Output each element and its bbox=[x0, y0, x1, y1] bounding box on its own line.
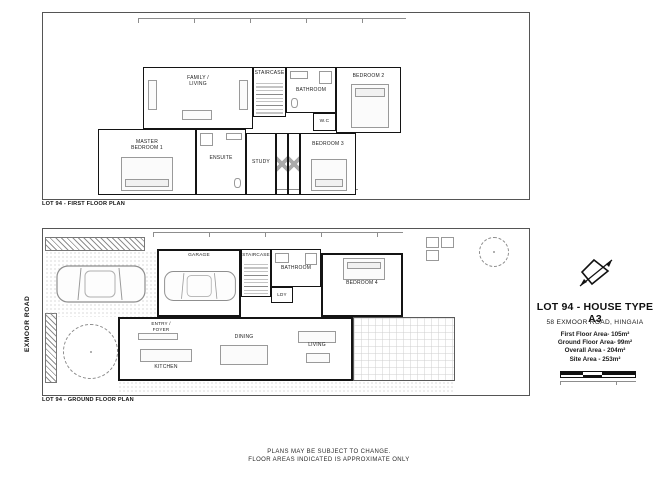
room-label: STAIRCASE bbox=[254, 71, 285, 77]
room-label: BEDROOM 2 bbox=[337, 74, 400, 80]
sheet-address: 58 EXMOOR ROAD, HINGAIA bbox=[533, 319, 657, 326]
scale-ticks bbox=[560, 381, 636, 386]
ground-floor-area: Ground Floor Area- 99m² bbox=[533, 339, 657, 347]
scale-bar bbox=[560, 371, 636, 378]
north-arrow-icon bbox=[572, 256, 616, 294]
vanity-icon bbox=[290, 71, 308, 79]
cabinet-icon bbox=[239, 80, 248, 110]
sofa-icon bbox=[148, 80, 157, 110]
area-summary: First Floor Area- 105m² Ground Floor Are… bbox=[533, 331, 657, 364]
room-wc: W.C bbox=[313, 113, 336, 131]
wardrobe-icon bbox=[276, 133, 288, 195]
toilet-icon bbox=[291, 98, 298, 108]
room-label: STAIRCASE bbox=[242, 252, 270, 258]
dimension-line bbox=[138, 18, 406, 23]
dining-table-icon bbox=[220, 345, 268, 365]
room-label: GARAGE bbox=[159, 253, 239, 259]
stairs-icon bbox=[256, 80, 283, 114]
vanity-icon bbox=[226, 133, 242, 140]
first-floor-plan: FAMILY / LIVING STAIRCASE BATHROOM W.C B… bbox=[42, 12, 530, 200]
overall-area: Overall Area - 204m² bbox=[533, 347, 657, 355]
room-staircase-first: STAIRCASE bbox=[253, 67, 286, 117]
pillow-icon bbox=[315, 179, 343, 187]
room-label: FAMILY / LIVING bbox=[144, 76, 252, 87]
shower-icon bbox=[319, 71, 332, 84]
room-label: KITCHEN bbox=[138, 365, 194, 371]
bed-icon bbox=[121, 157, 173, 191]
driveway-crossing-hatch bbox=[45, 237, 145, 251]
room-label: W.C bbox=[314, 119, 335, 125]
room-label: STUDY bbox=[247, 160, 275, 166]
kitchen-island-icon bbox=[140, 349, 192, 362]
toilet-icon bbox=[234, 178, 241, 188]
bed-icon bbox=[311, 159, 347, 191]
room-label: BATHROOM bbox=[287, 88, 335, 94]
room-bedroom2: BEDROOM 2 bbox=[336, 67, 401, 133]
path bbox=[118, 381, 455, 392]
bin-icon bbox=[441, 237, 454, 248]
room-label: BEDROOM 4 bbox=[323, 281, 401, 287]
pillow-icon bbox=[355, 88, 385, 97]
coffee-table-icon bbox=[182, 110, 212, 120]
bed-icon bbox=[351, 84, 389, 128]
room-label: BEDROOM 3 bbox=[301, 142, 355, 148]
room-bedroom4: BEDROOM 4 bbox=[321, 253, 403, 317]
room-label: MASTER BEDROOM 1 bbox=[99, 140, 195, 151]
shower-icon bbox=[200, 133, 213, 146]
tree-icon bbox=[63, 324, 118, 379]
disclaimer-line2: FLOOR AREAS INDICATED IS APPROXIMATE ONL… bbox=[179, 457, 479, 465]
disclaimer-notes: PLANS MAY BE SUBJECT TO CHANGE. FLOOR AR… bbox=[179, 449, 479, 464]
floor-plan-sheet: FAMILY / LIVING STAIRCASE BATHROOM W.C B… bbox=[0, 0, 658, 493]
bin-icon bbox=[426, 237, 439, 248]
room-bedroom3: BEDROOM 3 bbox=[300, 133, 356, 195]
scale-bar-row bbox=[561, 375, 635, 378]
room-label: LDY bbox=[272, 292, 292, 298]
room-bathroom-ground: BATHROOM bbox=[271, 249, 321, 287]
room-garage: GARAGE bbox=[157, 249, 241, 317]
room-family-living: FAMILY / LIVING bbox=[143, 67, 253, 129]
first-floor-caption: LOT 94 - FIRST FLOOR PLAN bbox=[42, 201, 125, 207]
first-floor-area: First Floor Area- 105m² bbox=[533, 331, 657, 339]
room-label: LIVING bbox=[292, 343, 342, 349]
stairs-icon bbox=[244, 261, 268, 294]
kitchen-bench-icon bbox=[138, 333, 178, 340]
vanity-icon bbox=[275, 253, 289, 263]
patio-deck bbox=[353, 317, 455, 381]
coffee-table-icon bbox=[306, 353, 330, 363]
dimension-line bbox=[153, 232, 403, 237]
room-label: DINING bbox=[216, 335, 272, 341]
ground-floor-caption: LOT 94 - GROUND FLOOR PLAN bbox=[42, 397, 134, 403]
pillow-icon bbox=[347, 262, 381, 269]
room-label: ENTRY / FOYER bbox=[138, 321, 184, 332]
room-bathroom-first: BATHROOM bbox=[286, 67, 336, 113]
room-laundry: LDY bbox=[271, 287, 293, 303]
bin-icon bbox=[426, 250, 439, 261]
verge-hatch bbox=[45, 313, 57, 383]
car-icon bbox=[55, 261, 147, 307]
room-staircase-ground: STAIRCASE bbox=[241, 249, 271, 297]
site-area: Site Area - 253m² bbox=[533, 356, 657, 364]
room-label: ENSUITE bbox=[197, 156, 245, 162]
pillow-icon bbox=[125, 179, 169, 187]
tree-icon bbox=[479, 237, 509, 267]
car-icon bbox=[163, 263, 237, 309]
room-ensuite: ENSUITE bbox=[196, 129, 246, 195]
ground-floor-plan: GARAGE STAIRCASE BATHROOM LDY BEDROOM 4 bbox=[42, 228, 530, 396]
room-label: BATHROOM bbox=[272, 266, 320, 272]
road-label: EXMOOR ROAD bbox=[24, 296, 31, 352]
room-master-bedroom1: MASTER BEDROOM 1 bbox=[98, 129, 196, 195]
shower-icon bbox=[305, 253, 317, 265]
room-open-plan: ENTRY / FOYER KITCHEN DINING LIVING bbox=[118, 317, 353, 381]
disclaimer-line1: PLANS MAY BE SUBJECT TO CHANGE. bbox=[179, 449, 479, 457]
room-study: STUDY bbox=[246, 133, 276, 195]
bed-icon bbox=[343, 258, 385, 280]
wardrobe-icon bbox=[288, 133, 300, 195]
